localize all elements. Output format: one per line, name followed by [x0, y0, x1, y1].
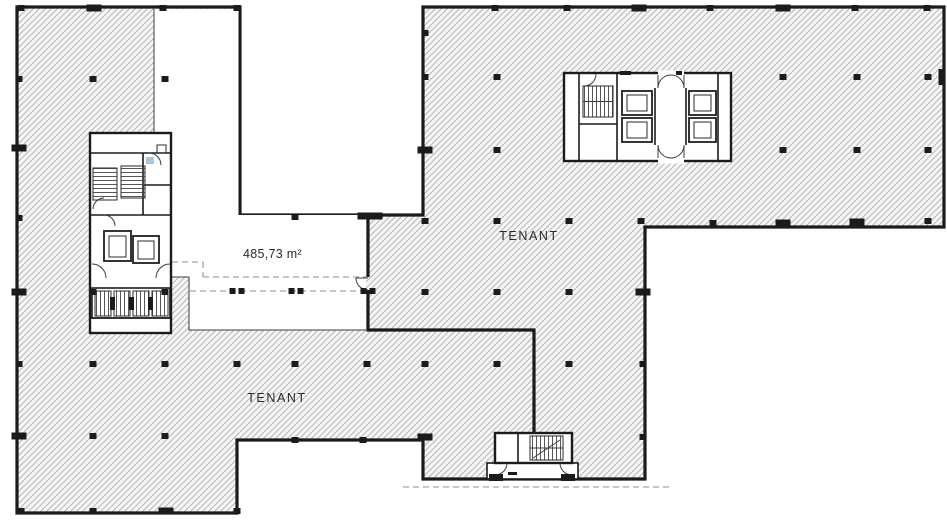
blue-fixture	[146, 157, 154, 164]
column	[494, 74, 501, 80]
column	[87, 5, 102, 12]
left-core	[90, 133, 171, 333]
column	[12, 289, 27, 296]
column	[234, 508, 241, 514]
column	[360, 437, 367, 443]
column	[12, 145, 27, 152]
column	[566, 218, 573, 224]
column	[422, 289, 429, 295]
column	[638, 218, 645, 224]
column	[566, 289, 573, 295]
stair-flight	[121, 166, 145, 198]
column	[162, 361, 169, 367]
column	[852, 5, 859, 11]
column	[422, 74, 429, 80]
column	[90, 433, 97, 439]
tenant-label-upper: TENANT	[499, 229, 559, 243]
bottom-stair-core	[487, 433, 578, 481]
column	[90, 76, 97, 82]
column	[632, 5, 647, 12]
column	[239, 288, 245, 294]
tenant-label-lower: TENANT	[247, 391, 307, 405]
door-jamb	[620, 71, 631, 75]
vacant-neck	[171, 215, 366, 330]
column	[924, 5, 931, 11]
column	[494, 147, 501, 153]
column	[162, 289, 169, 295]
column	[370, 288, 376, 294]
elevator-car	[95, 291, 111, 316]
column	[939, 69, 944, 85]
column	[160, 5, 167, 11]
column	[90, 361, 97, 367]
column	[292, 361, 299, 367]
column	[361, 288, 367, 294]
column	[298, 288, 304, 294]
floor-plan: TENANT TENANT 485,73 m²	[0, 0, 947, 524]
column	[12, 433, 27, 440]
column	[850, 219, 865, 226]
column	[16, 215, 23, 221]
column	[234, 361, 241, 367]
column	[925, 218, 932, 224]
column	[292, 214, 299, 220]
column	[776, 5, 791, 12]
column	[854, 74, 861, 80]
column	[925, 147, 932, 153]
column	[925, 74, 932, 80]
column	[418, 147, 433, 154]
column	[780, 74, 787, 80]
column	[422, 30, 429, 36]
column	[707, 5, 714, 11]
column	[494, 361, 501, 367]
column	[494, 289, 501, 295]
column	[90, 289, 97, 295]
door-jamb	[676, 71, 682, 75]
column	[16, 76, 23, 82]
column	[776, 220, 791, 227]
right-core	[564, 71, 731, 164]
column	[566, 361, 573, 367]
stair-flight	[93, 168, 117, 200]
column	[162, 433, 169, 439]
column	[289, 288, 295, 294]
column	[710, 220, 717, 226]
column	[358, 213, 383, 220]
column	[422, 361, 429, 367]
column	[159, 508, 174, 515]
column	[640, 361, 647, 367]
elevator-car	[133, 291, 149, 316]
floor-plan-canvas: TENANT TENANT 485,73 m²	[0, 0, 947, 524]
column	[418, 434, 433, 441]
column	[494, 218, 501, 224]
column	[162, 76, 169, 82]
column	[18, 5, 25, 11]
column	[234, 5, 241, 11]
column	[640, 434, 647, 440]
column	[854, 147, 861, 153]
column	[564, 5, 571, 11]
column	[90, 508, 97, 514]
elevator-car	[114, 291, 130, 316]
column	[492, 5, 499, 11]
column	[292, 437, 299, 443]
column	[780, 147, 787, 153]
column	[230, 288, 236, 294]
column	[18, 508, 25, 514]
column	[364, 361, 371, 367]
column	[636, 289, 651, 296]
column	[16, 361, 23, 367]
column	[422, 218, 429, 224]
vacant-area-label: 485,73 m²	[243, 247, 302, 261]
